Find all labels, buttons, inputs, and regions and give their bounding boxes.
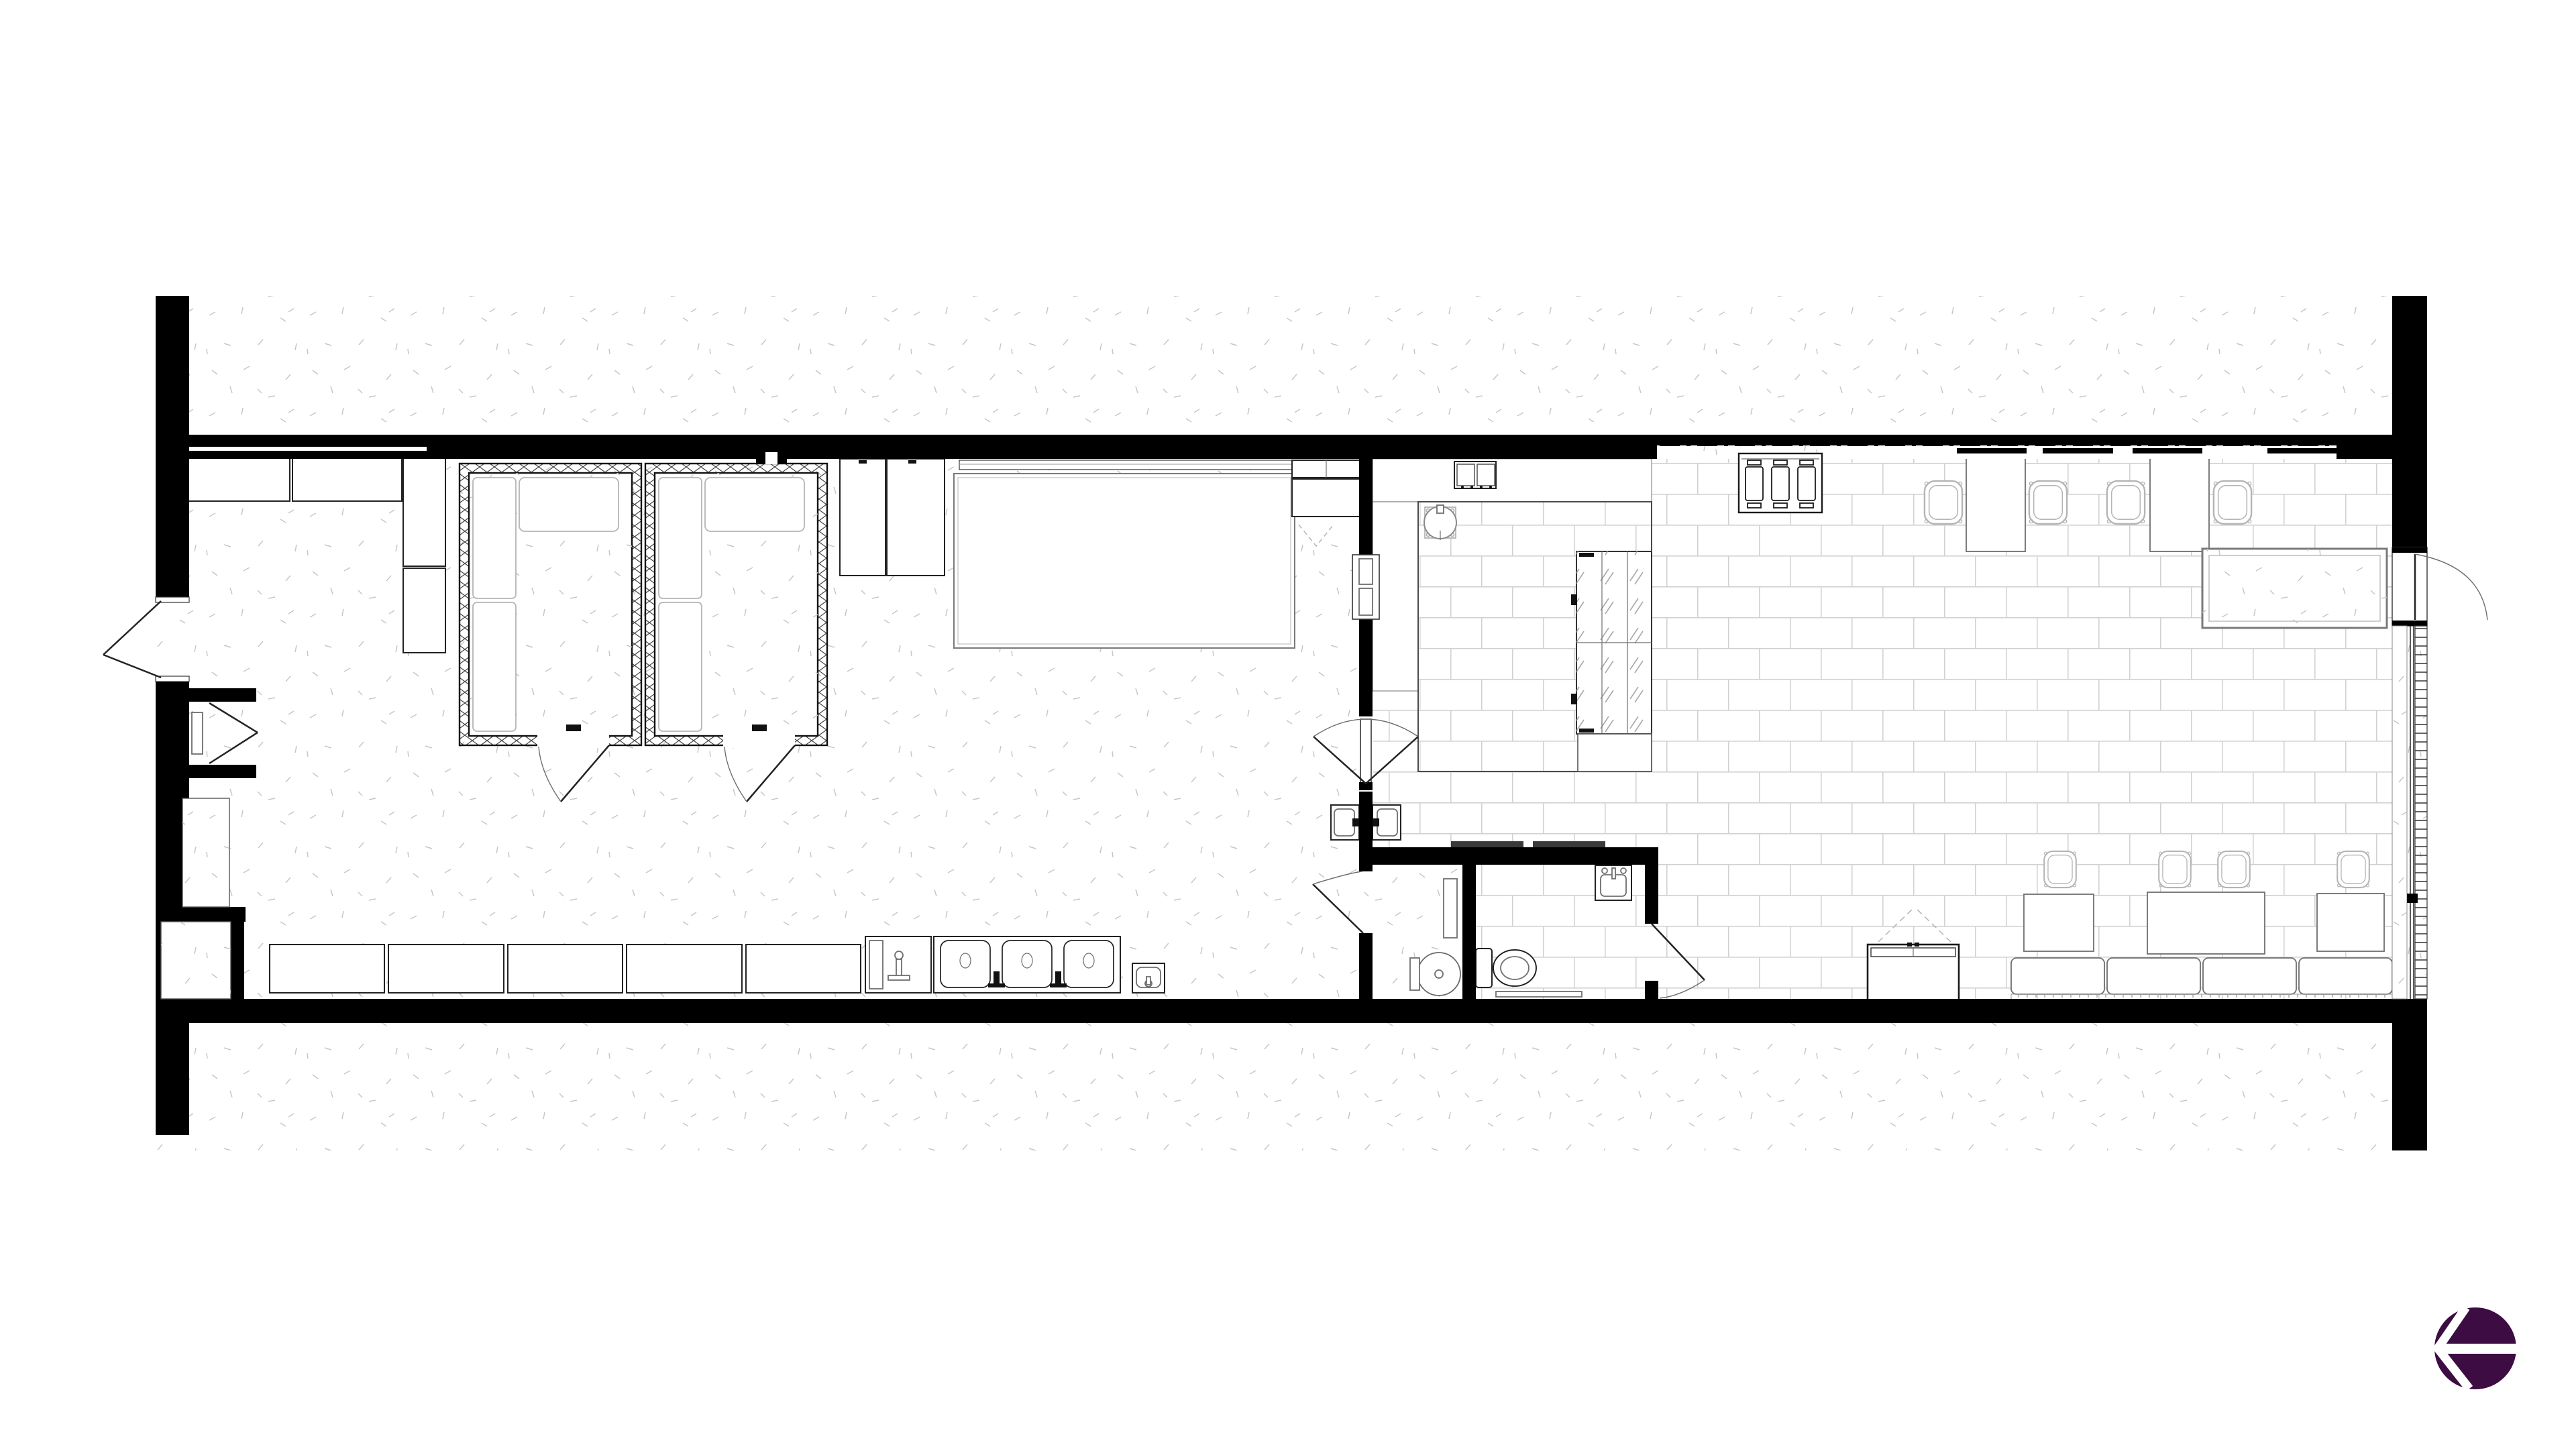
cafe-table: [1966, 456, 2025, 551]
cooler-shelving: [473, 478, 516, 598]
bottom-counter-row: [270, 945, 861, 993]
chair: [2214, 481, 2251, 524]
cafe-tables-south: [2024, 892, 2384, 954]
counter-section: [746, 945, 861, 993]
closet-shelf: [1444, 879, 1457, 938]
floor-plan-canvas: [0, 0, 2576, 1449]
shaft: [182, 798, 229, 907]
bathroom-north-wall: [1359, 847, 1658, 865]
west-wall-upper: [156, 296, 189, 597]
prep-worktable: [954, 474, 1295, 648]
tall-cabinet: [403, 456, 445, 653]
cooler-shelving: [659, 602, 702, 731]
alcove-wall: [189, 688, 256, 702]
counter-section: [627, 945, 742, 993]
chair: [2044, 851, 2076, 888]
toilet-tank: [1476, 949, 1492, 987]
counter-section: [270, 945, 384, 993]
counter-mixer: [1424, 505, 1456, 540]
hand-sink: [1132, 963, 1165, 993]
mop-sink: [865, 936, 931, 993]
bathroom-partition: [1462, 865, 1476, 999]
prep-counter: [182, 456, 290, 501]
window-glass-bar: [1957, 448, 2027, 453]
cafe-table: [2024, 894, 2094, 951]
three-compartment-sink: [934, 936, 1120, 993]
barista-double-sink: [1454, 462, 1496, 488]
floor-plan-page: [0, 0, 2576, 1449]
divider-pass-through-window: [1352, 555, 1379, 619]
counter-section: [388, 945, 504, 993]
grab-bar: [1496, 991, 1582, 997]
door-leaf: [103, 655, 161, 678]
bench-cushion: [2203, 958, 2296, 994]
niche-wall: [156, 907, 246, 922]
window-glass-bar: [2133, 448, 2202, 453]
window-glass-bar: [2267, 448, 2337, 453]
chair: [2337, 851, 2369, 888]
east-pier-north: [2392, 296, 2427, 547]
north-wall: [161, 435, 2392, 445]
cafe-table: [2147, 892, 2265, 954]
chair: [2218, 851, 2250, 888]
cooler-shelf-unit: [705, 478, 804, 531]
chair: [2159, 851, 2191, 888]
storefront-windows-north: [1957, 448, 2337, 453]
glazing-mullion: [2407, 894, 2418, 903]
entry-mat: [2202, 549, 2387, 628]
cooler-shelving: [659, 478, 702, 598]
east-entry-door: [2392, 547, 2487, 626]
espresso-machine-battery: [1739, 453, 1822, 513]
alcove-shelf: [192, 712, 203, 754]
bathroom-east-wall: [1645, 865, 1658, 924]
bench-cushion: [2107, 958, 2200, 994]
pastry-display-case: [1571, 551, 1652, 771]
bench-cushion: [2299, 958, 2392, 994]
chair: [1925, 481, 1962, 524]
window-glass-bar: [2043, 448, 2113, 453]
chair: [2029, 481, 2067, 524]
chair: [2107, 481, 2145, 524]
cooler-shelf-unit: [519, 478, 619, 531]
cafe-table: [2150, 456, 2209, 551]
cooler-door-opening: [723, 733, 795, 748]
storage-niche: [161, 922, 231, 999]
cooler-shelving: [473, 602, 516, 731]
south-wall: [156, 999, 2427, 1023]
wall-cabinets-left-of-table: [840, 459, 945, 576]
counter-section: [508, 945, 623, 993]
divider-wall: [1359, 459, 1373, 555]
east-pier-south: [2392, 999, 2427, 1150]
door-leaf: [103, 601, 161, 655]
case-plinth: [1578, 734, 1652, 771]
cafe-table: [2317, 894, 2384, 951]
cooler-door-opening: [537, 733, 609, 748]
bench-cushion: [2011, 958, 2104, 994]
arrow-circle-logo: [2434, 1307, 2518, 1389]
prep-counters: [182, 456, 402, 501]
prep-counter: [292, 456, 402, 501]
